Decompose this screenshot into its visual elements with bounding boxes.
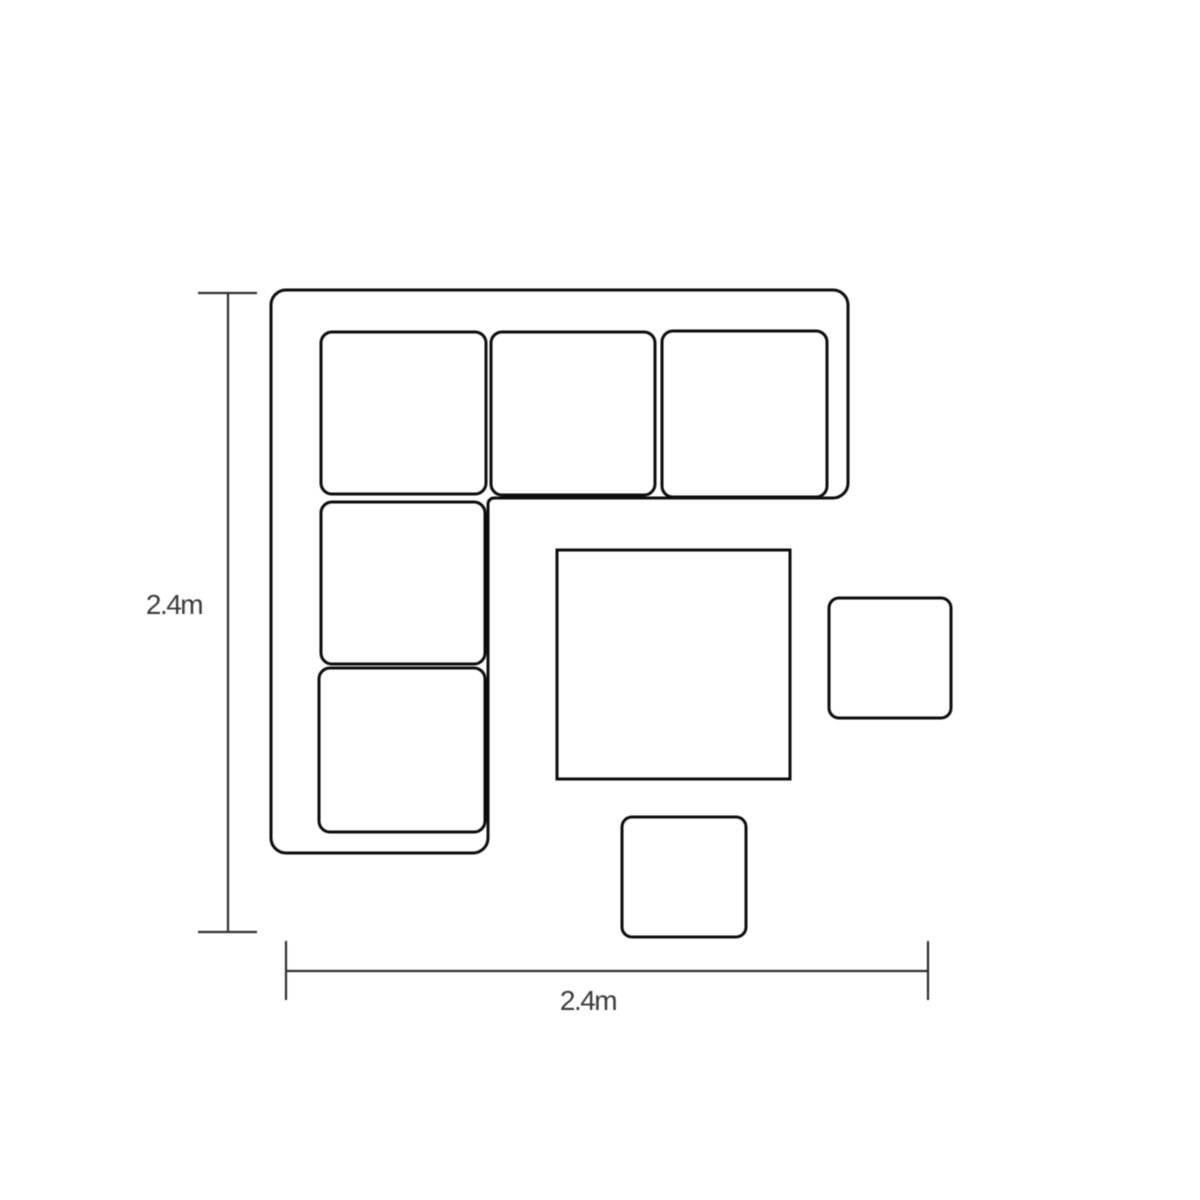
- svg-text:2.4m: 2.4m: [560, 985, 616, 1016]
- svg-text:2.4m: 2.4m: [146, 589, 202, 620]
